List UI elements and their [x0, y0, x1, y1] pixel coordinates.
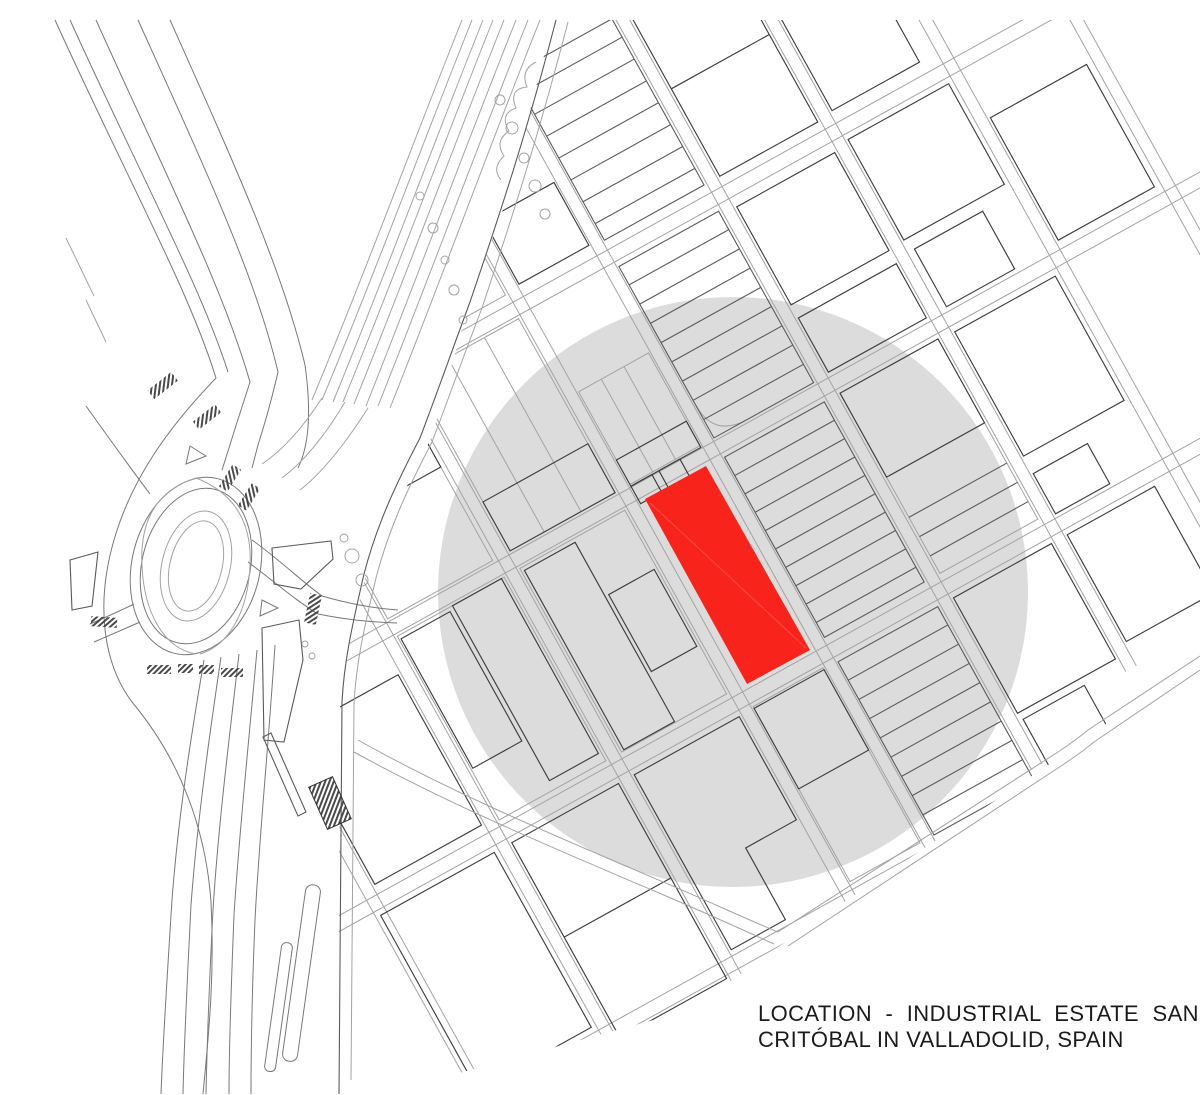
site-location-plan: LOCATION - INDUSTRIAL ESTATE SAN CRITÓBA…	[0, 0, 1200, 1095]
caption: LOCATION - INDUSTRIAL ESTATE SAN CRITÓBA…	[758, 1001, 1199, 1053]
highway-west	[55, 20, 309, 1094]
station-building	[309, 777, 351, 830]
crosswalk-marks	[91, 372, 322, 677]
caption-line-1: LOCATION - INDUSTRIAL ESTATE SAN	[758, 1001, 1199, 1027]
caption-line-2: CRITÓBAL IN VALLADOLID, SPAIN	[758, 1027, 1199, 1053]
rail-platforms	[263, 733, 351, 1072]
map-canvas	[0, 0, 1200, 1095]
roundabout	[86, 406, 398, 669]
